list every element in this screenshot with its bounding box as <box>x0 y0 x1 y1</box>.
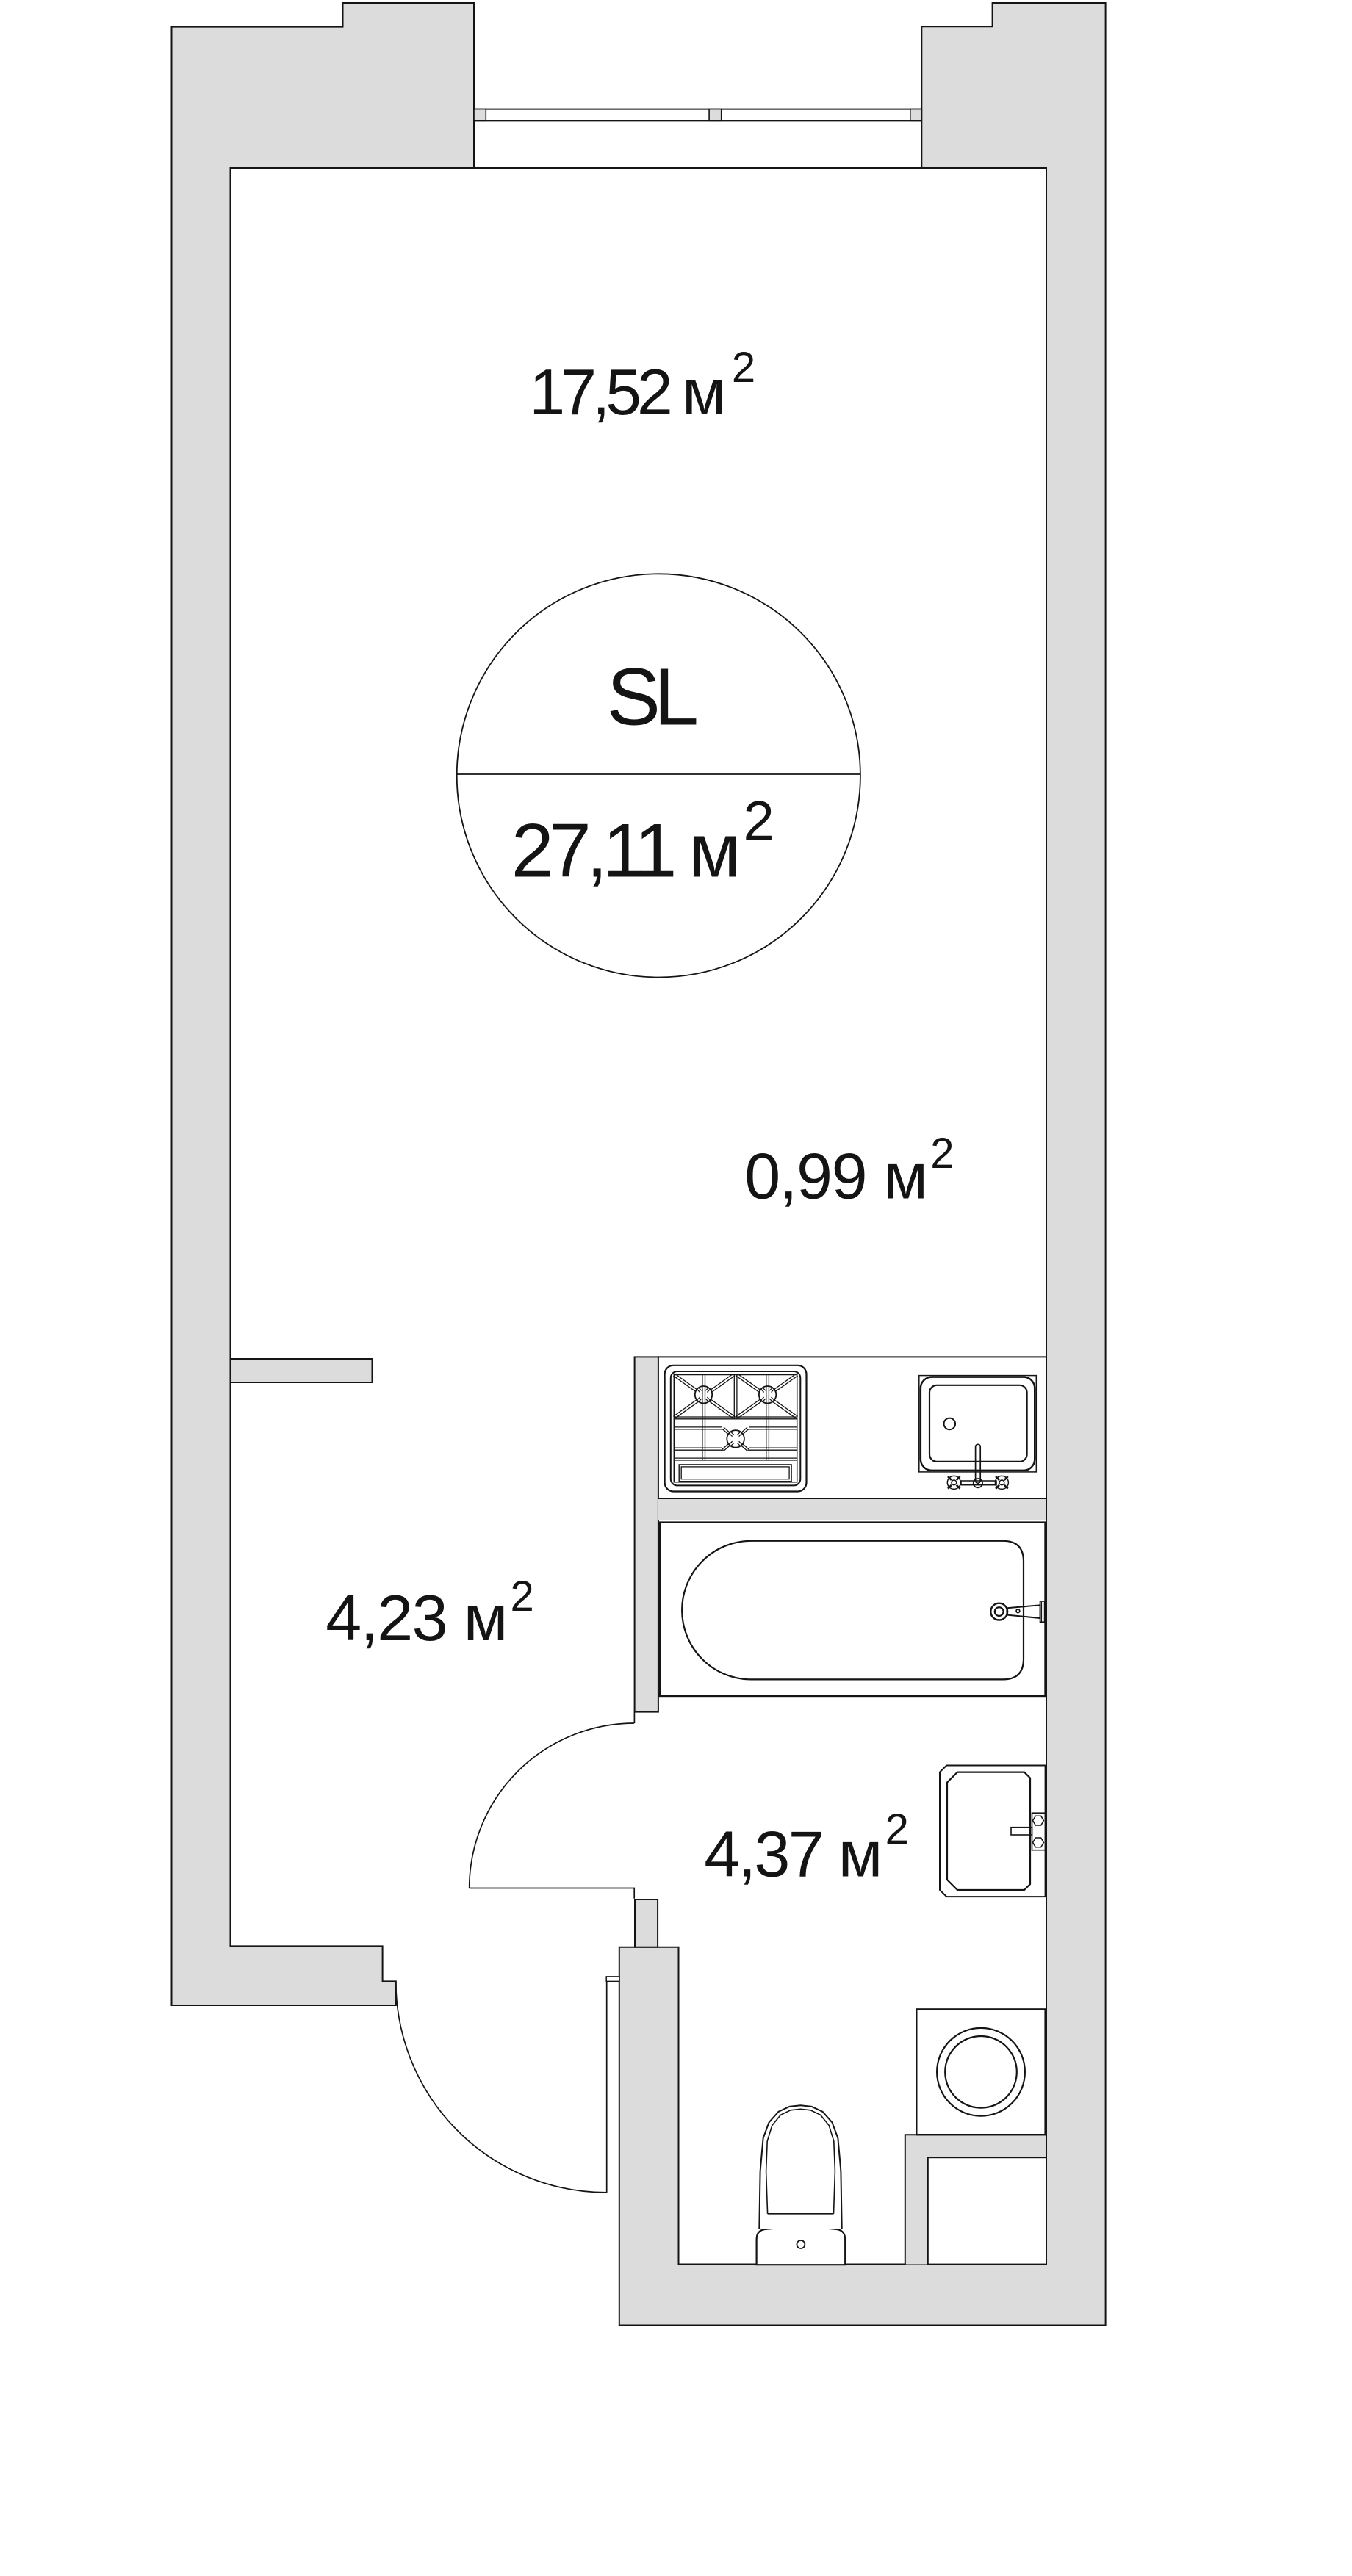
svg-text:L: L <box>654 652 699 742</box>
svg-text:4,37 м: 4,37 м <box>704 1818 882 1891</box>
svg-text:S: S <box>607 652 661 742</box>
svg-text:17,52 м: 17,52 м <box>529 356 726 428</box>
svg-text:2: 2 <box>930 1130 954 1177</box>
svg-text:27,11 м: 27,11 м <box>511 808 741 893</box>
svg-text:2: 2 <box>732 344 755 392</box>
svg-text:2: 2 <box>885 1805 909 1853</box>
svg-text:4,23 м: 4,23 м <box>326 1581 508 1654</box>
svg-text:2: 2 <box>744 790 774 852</box>
svg-text:0,99 м: 0,99 м <box>744 1140 928 1213</box>
svg-text:2: 2 <box>511 1573 534 1620</box>
